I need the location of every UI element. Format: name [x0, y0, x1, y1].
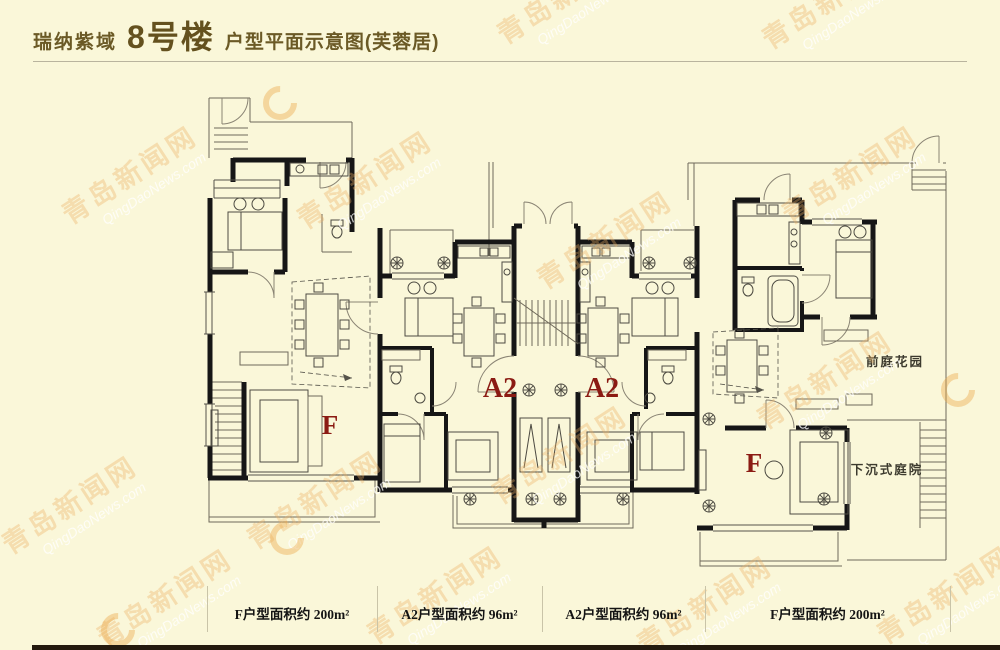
unit-label-f-left: F — [322, 410, 339, 440]
title-suffix: 户型平面示意图(芙蓉居) — [225, 27, 440, 54]
footer-separator — [950, 586, 951, 632]
sunken-yard-outline — [847, 420, 946, 560]
area-label-f-left: F户型面积约 200m² — [207, 603, 377, 623]
area-label-a2-right: A2户型面积约 96m² — [542, 603, 705, 623]
building-number: 8号楼 — [127, 12, 215, 58]
footer-bar — [32, 645, 1000, 650]
terrace-right — [700, 532, 842, 566]
entry-court-topleft — [209, 98, 352, 158]
area-label-f-right: F户型面积约 200m² — [705, 603, 950, 623]
floor-plan: F A2 A2 F 前庭花园 下沉式庭院 青岛新闻网QingDaoNews.co… — [0, 0, 1000, 650]
sunken-yard-label: 下沉式庭院 — [851, 462, 924, 477]
area-label-a2-left: A2户型面积约 96m² — [377, 603, 542, 623]
stairs-left — [212, 382, 242, 470]
project-name: 瑞纳紫域 — [33, 27, 117, 54]
title-divider — [33, 61, 967, 62]
watermarks: 青岛新闻网QingDaoNews.com 青岛新闻网QingDaoNews.co… — [0, 0, 1000, 650]
bay-window — [214, 180, 280, 198]
unit-label-a2-right: A2 — [585, 373, 619, 404]
unit-label-a2-left: A2 — [483, 373, 517, 404]
unit-label-f-right: F — [746, 448, 763, 478]
page-title: 瑞纳紫域 8号楼 户型平面示意图(芙蓉居) — [33, 12, 439, 58]
dashed-regions — [292, 276, 778, 398]
